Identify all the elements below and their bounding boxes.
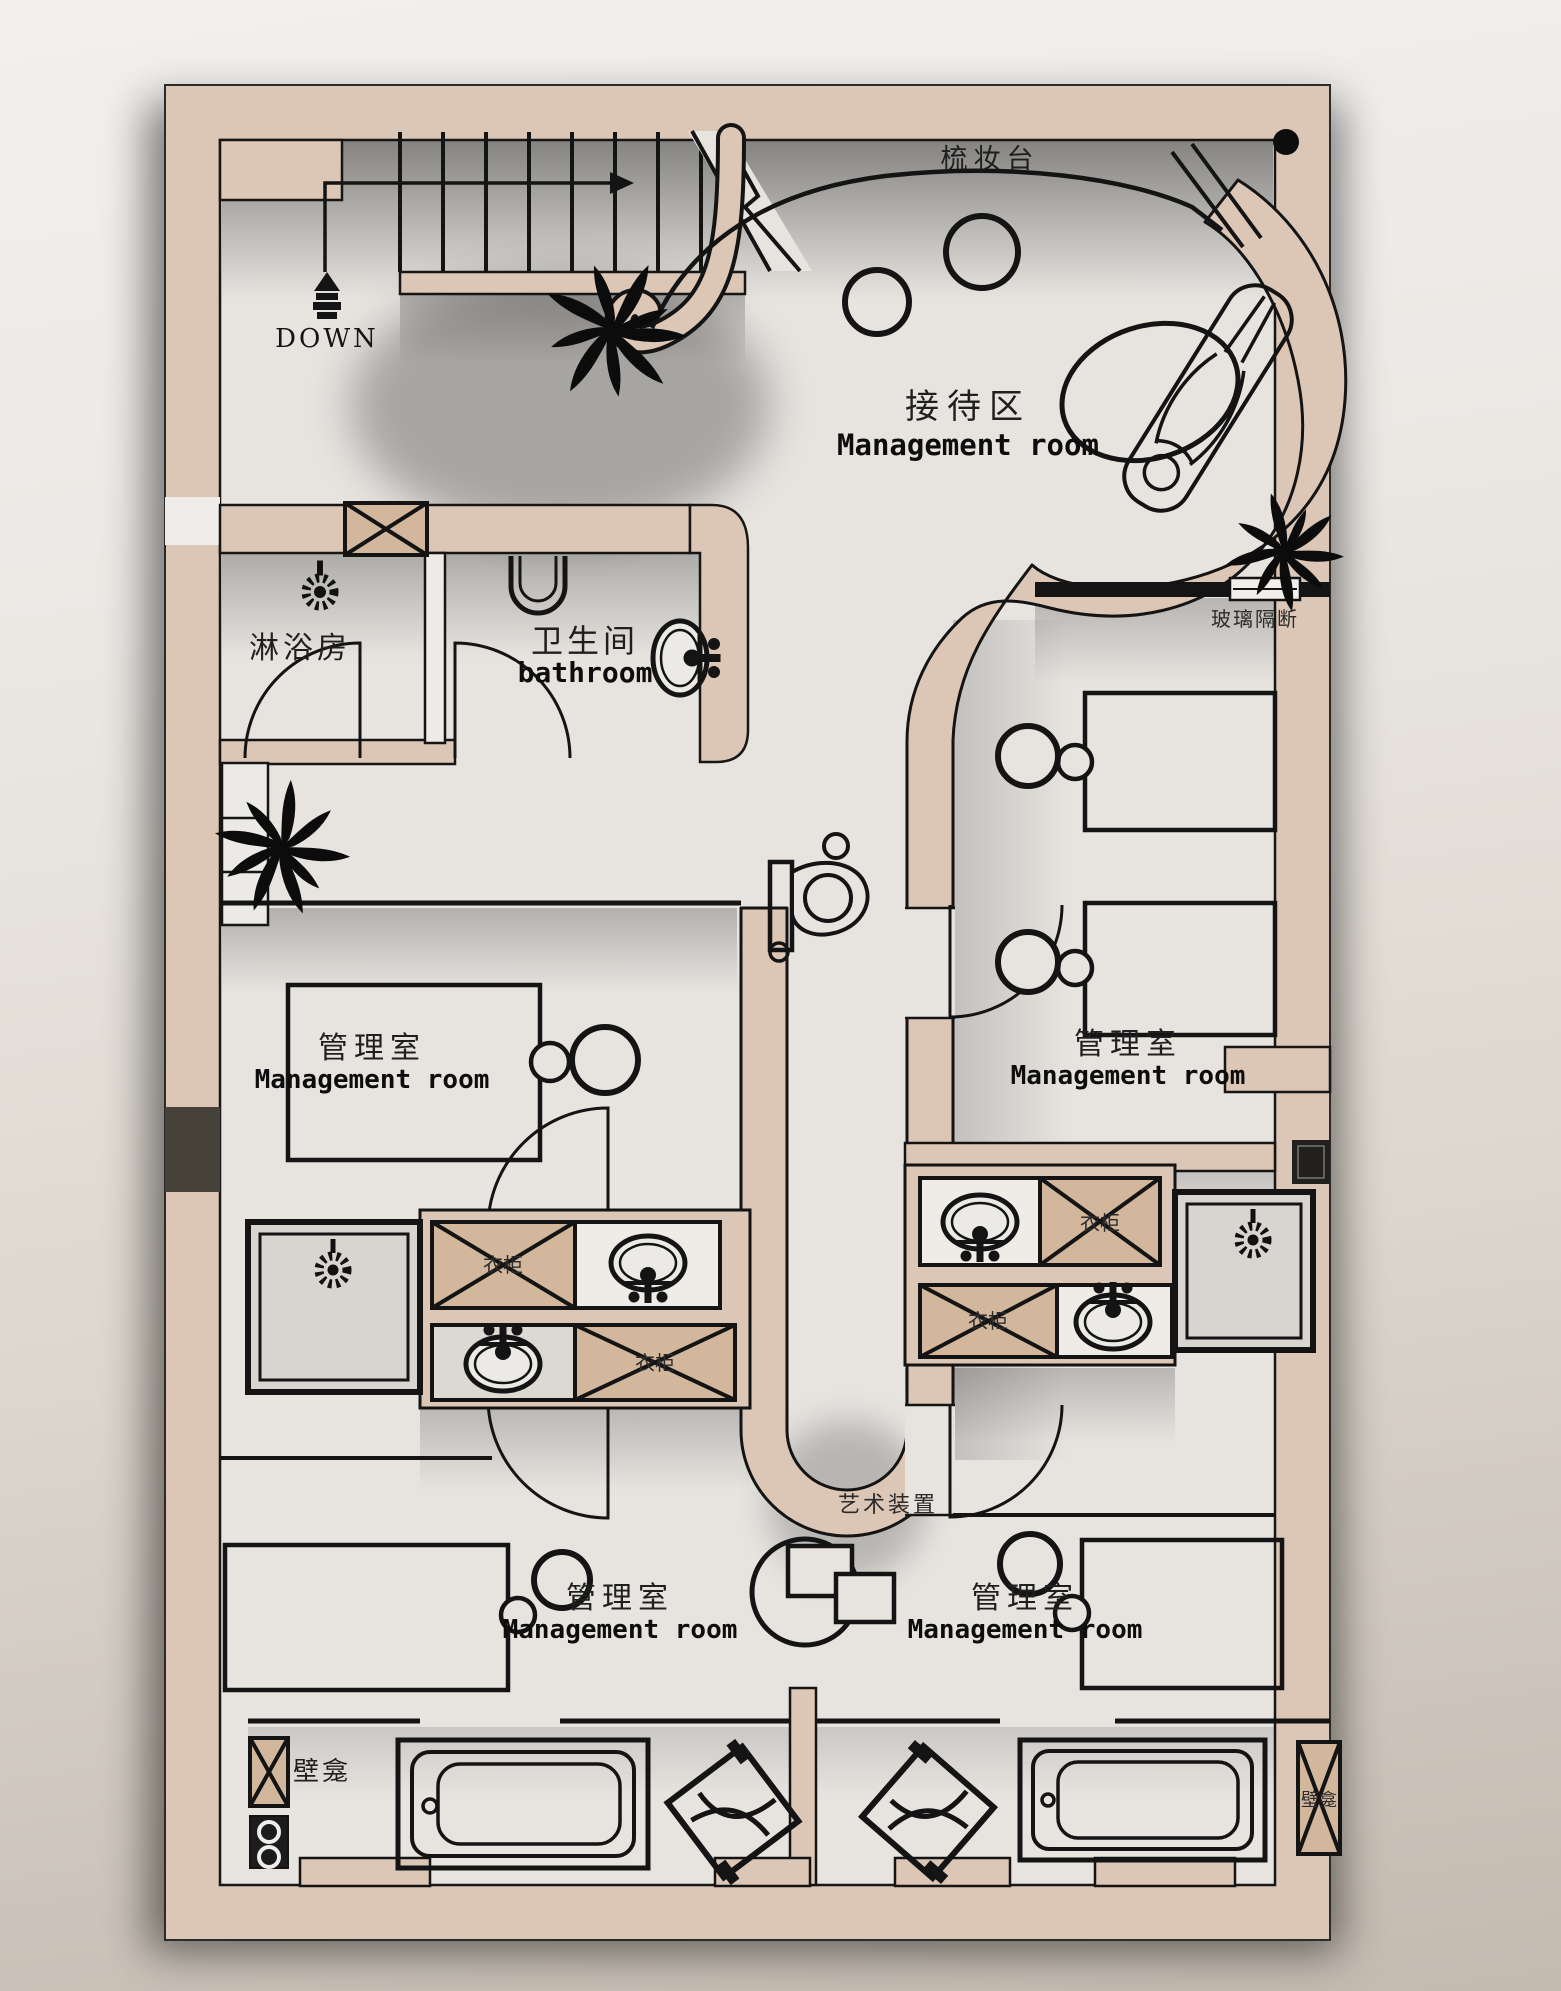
label-mgmt-bottom-right-z: 管理室: [971, 1581, 1079, 1616]
label-bathroom-e: bathroom: [518, 656, 653, 689]
label-glass-partition: 玻璃隔断: [1211, 607, 1299, 631]
label-dressing-table: 梳妆台: [941, 144, 1040, 175]
stool-circle: [572, 1027, 638, 1093]
label-wardrobe-3: 衣柜: [1080, 1211, 1120, 1235]
floor-plan-canvas: 梳妆台 接待区 Management room DOWN 淋浴房 卫生间 bat…: [0, 0, 1561, 1991]
label-mgmt-mid-right-z: 管理室: [1074, 1027, 1182, 1062]
label-mgmt-mid-right-e: Management room: [1011, 1061, 1246, 1091]
stool-circle: [998, 726, 1058, 786]
person-head: [824, 834, 848, 858]
bottom-divider-wall: [790, 1688, 816, 1885]
label-wardrobe-4: 衣柜: [968, 1309, 1008, 1333]
label-reception-e: Management room: [837, 428, 1099, 462]
shower-cubicle-right: [1175, 1192, 1313, 1350]
label-shower-room: 淋浴房: [249, 631, 351, 666]
cabinet-block-right: [905, 1165, 1313, 1365]
label-art-installation: 艺术装置: [838, 1493, 938, 1518]
shower-bath-divider: [425, 553, 445, 743]
left-wall-opening: [165, 497, 220, 545]
label-mgmt-mid-left-e: Management room: [255, 1065, 490, 1095]
niche-cabinet-left: [250, 1738, 288, 1868]
label-mgmt-bottom-left-e: Management room: [503, 1615, 738, 1645]
wardrobe-cabinet-small: [345, 503, 427, 555]
shower-cubicle-left: [248, 1222, 420, 1392]
label-wardrobe-2: 衣柜: [635, 1351, 675, 1375]
wall-pier: [300, 1858, 430, 1886]
stool-circle: [998, 932, 1058, 992]
label-mgmt-mid-left-z: 管理室: [318, 1031, 426, 1066]
label-wardrobe-1: 衣柜: [483, 1253, 523, 1277]
label-niche-right: 壁龛: [1301, 1790, 1337, 1811]
label-niche-left: 壁龛: [293, 1757, 351, 1787]
label-mgmt-bottom-right-e: Management room: [908, 1615, 1143, 1645]
left-wall-dark-slot: [165, 1107, 220, 1192]
label-reception-z: 接待区: [905, 387, 1031, 427]
label-down: DOWN: [275, 324, 379, 354]
label-mgmt-bottom-left-z: 管理室: [566, 1581, 674, 1616]
label-bathroom-z: 卫生间: [531, 622, 639, 660]
corner-dot: [1273, 129, 1299, 155]
cabinet-block-left: [248, 1210, 750, 1408]
